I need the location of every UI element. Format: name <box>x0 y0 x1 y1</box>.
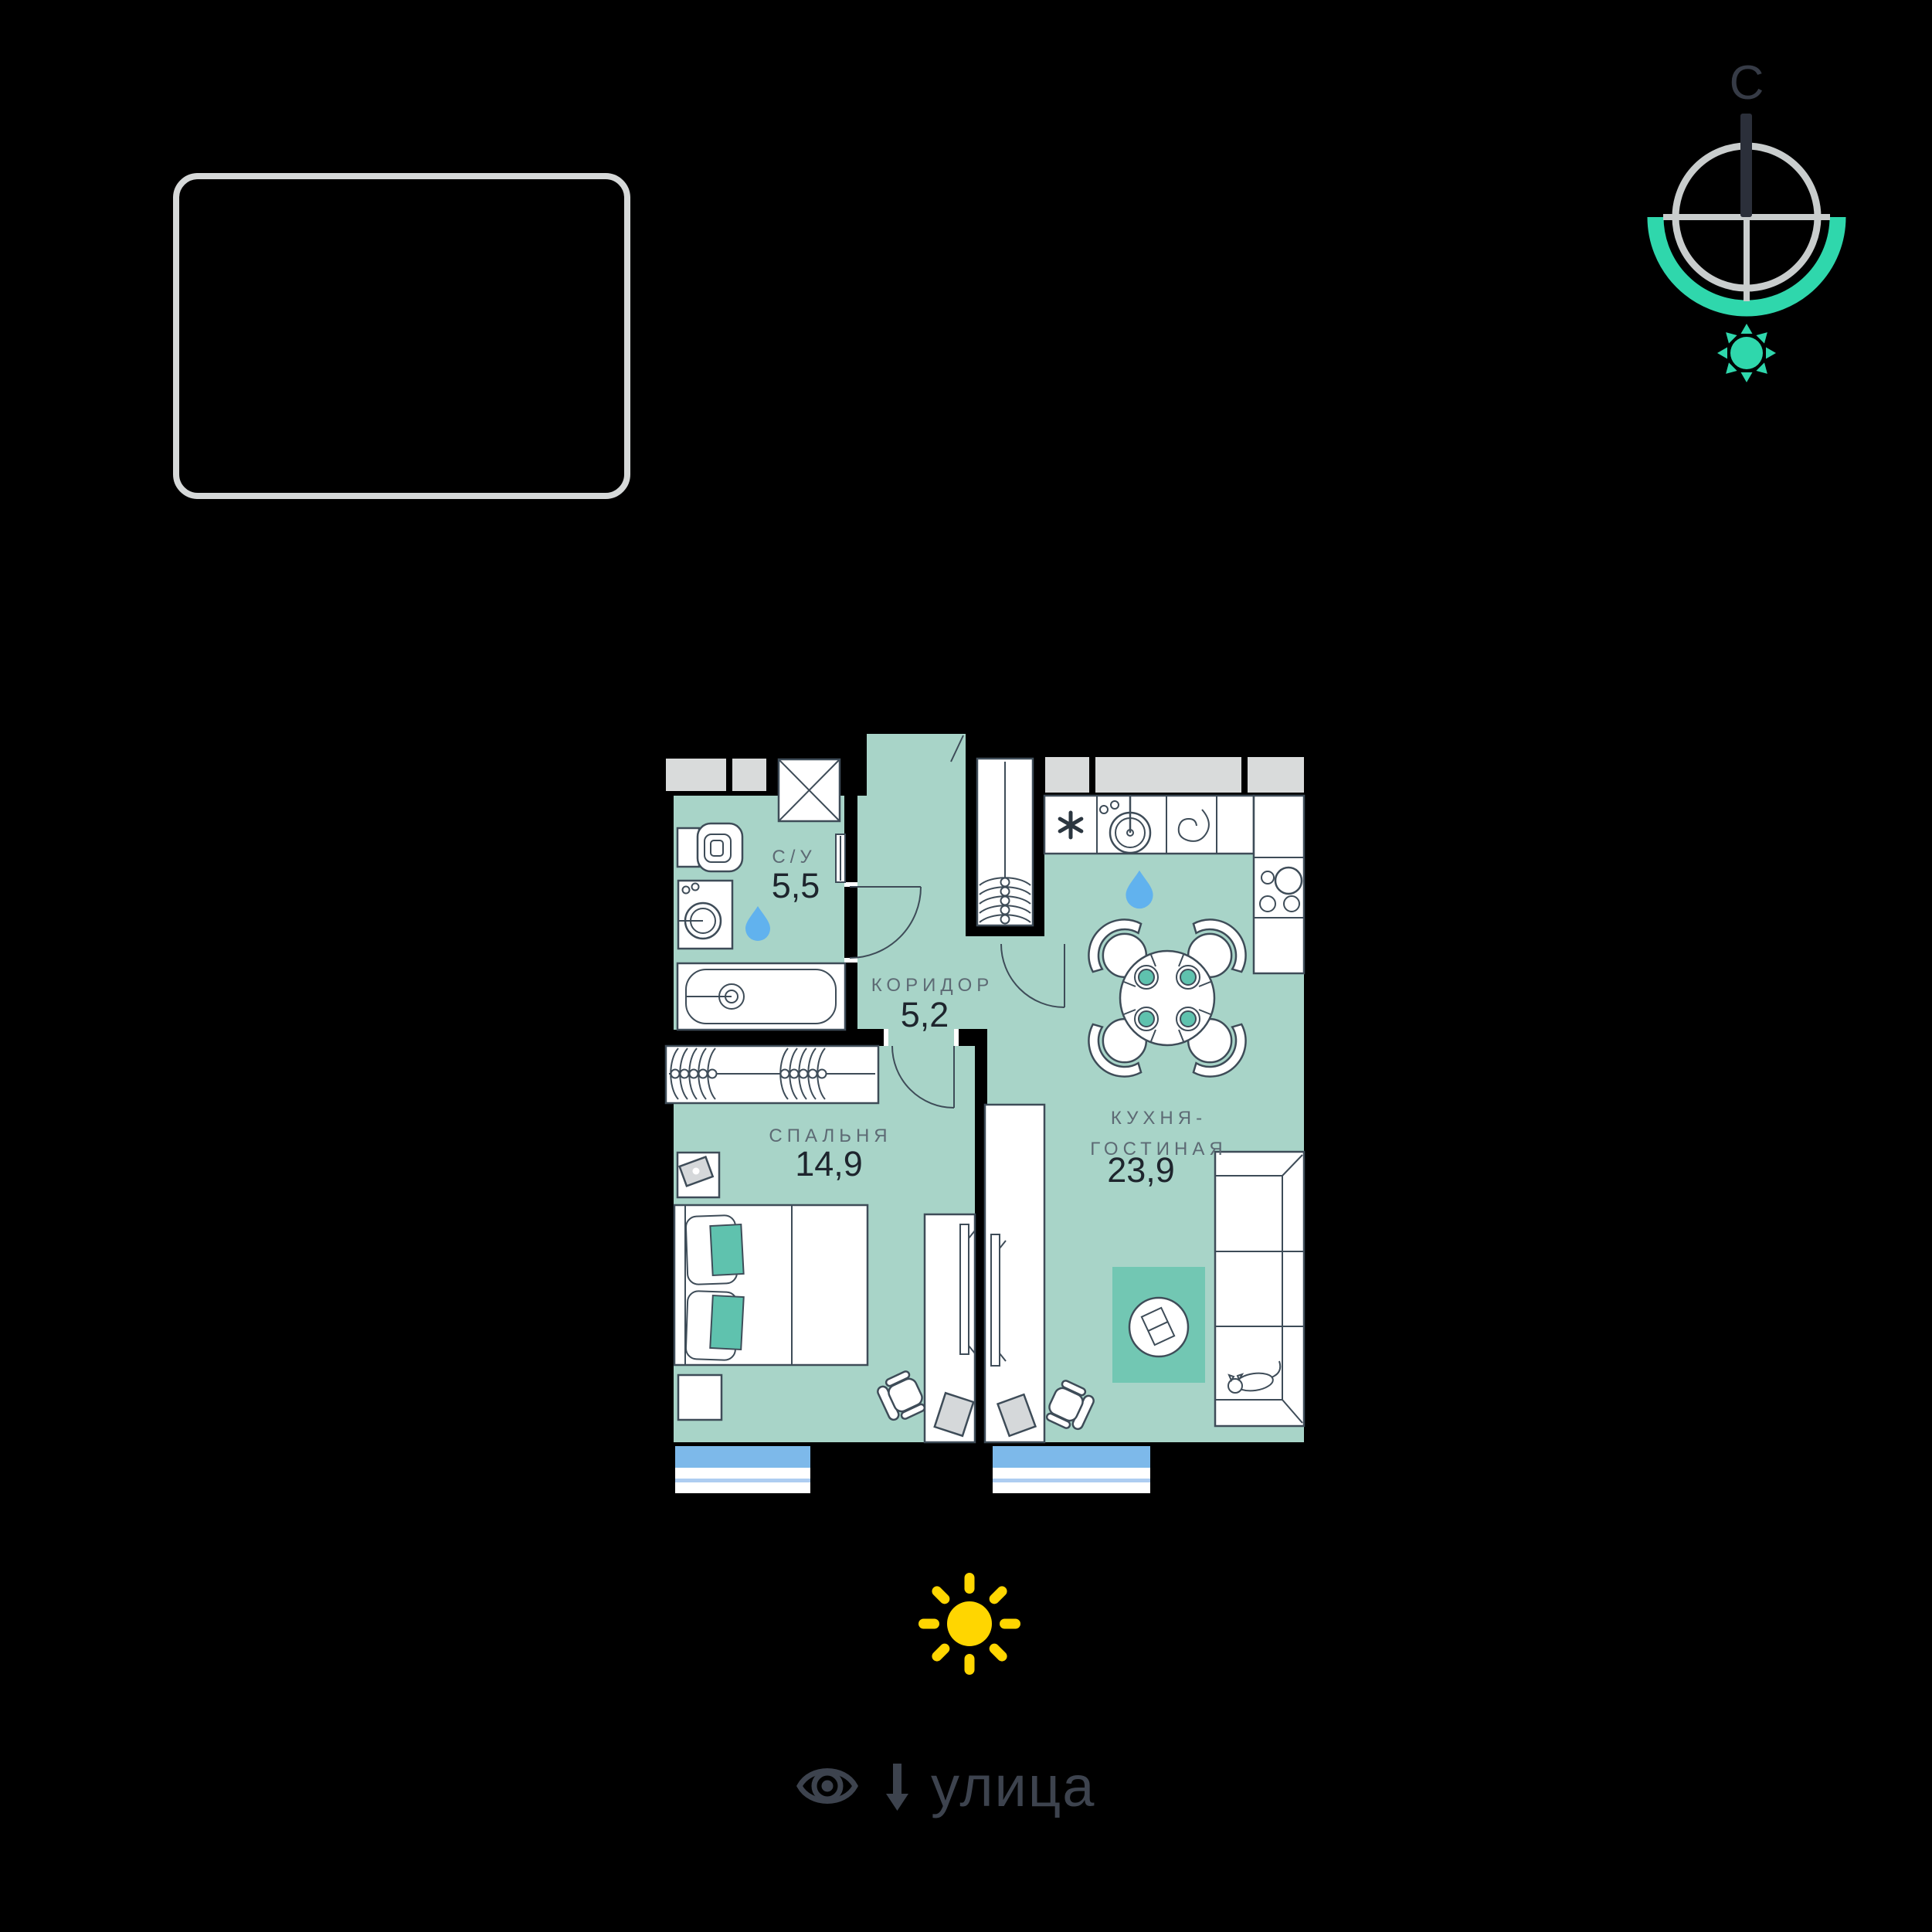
jamb-cap <box>954 1029 959 1046</box>
nightstand <box>677 1153 719 1197</box>
coffee-table <box>1129 1298 1188 1356</box>
area-label-kitchen: 23,9 <box>1107 1150 1175 1190</box>
bedroom-bench <box>678 1375 722 1420</box>
washing-machine <box>678 881 732 949</box>
sun-icon-yellow <box>918 1573 1020 1675</box>
sofa <box>1215 1152 1304 1426</box>
bed <box>674 1205 868 1365</box>
bed-pillow-accent <box>710 1295 744 1350</box>
compass-needle <box>1740 114 1752 217</box>
wardrobe-bedroom <box>666 1046 878 1103</box>
facade-shaft <box>1095 757 1241 793</box>
toilet <box>677 823 742 871</box>
entry-niche-floor <box>867 734 969 797</box>
info-box <box>176 176 627 496</box>
wall-corridor-bedroom-left <box>844 1029 888 1046</box>
facade-shaft <box>732 759 766 791</box>
floorplan-page: С <box>0 0 1932 1932</box>
closet-corridor <box>977 759 1033 925</box>
facade-shaft <box>1248 757 1304 793</box>
dining-table <box>1120 951 1214 1045</box>
floorplan-canvas: С <box>0 0 1932 1932</box>
room-label-bedroom: СПАЛЬНЯ <box>769 1126 891 1146</box>
window-kitchen <box>993 1446 1150 1493</box>
compass-icon: С <box>1655 56 1838 308</box>
area-label-bathroom: 5,5 <box>772 866 820 905</box>
bathtub <box>677 963 845 1030</box>
tv-kitchen <box>991 1234 1000 1366</box>
eye-icon <box>800 1771 855 1801</box>
area-label-bedroom: 14,9 <box>795 1144 863 1183</box>
north-label: С <box>1730 56 1764 110</box>
bed-pillow-accent <box>710 1224 743 1275</box>
area-label-corridor: 5,2 <box>901 995 949 1034</box>
sun-icon-teal <box>1717 324 1776 382</box>
bathroom-wall-shelf <box>836 834 845 882</box>
wall-bathroom-right-upper <box>844 796 857 887</box>
room-label-corridor: КОРИДОР <box>871 975 994 996</box>
street-label: улица <box>931 1754 1095 1818</box>
facade-shaft <box>666 759 726 791</box>
window-bedroom <box>675 1446 810 1493</box>
desk-kitchen <box>985 1105 1044 1442</box>
room-label-bathroom: С/У <box>772 847 816 868</box>
jamb-cap <box>884 1029 888 1046</box>
wall-corridor-bedroom-right <box>954 1029 987 1046</box>
floor-plan: С/У 5,5 КОРИДОР 5,2 СПАЛЬНЯ 14,9 КУХНЯ- … <box>657 732 1321 1493</box>
arrow-down-icon <box>886 1764 908 1811</box>
street-row: улица <box>800 1754 1095 1818</box>
room-label-kitchen-line1: КУХНЯ- <box>1111 1108 1207 1129</box>
tv-bedroom <box>960 1224 969 1354</box>
desk-bedroom <box>925 1214 975 1442</box>
wall-bathroom-right-lower <box>844 958 857 1029</box>
facade-shaft <box>1045 757 1089 793</box>
